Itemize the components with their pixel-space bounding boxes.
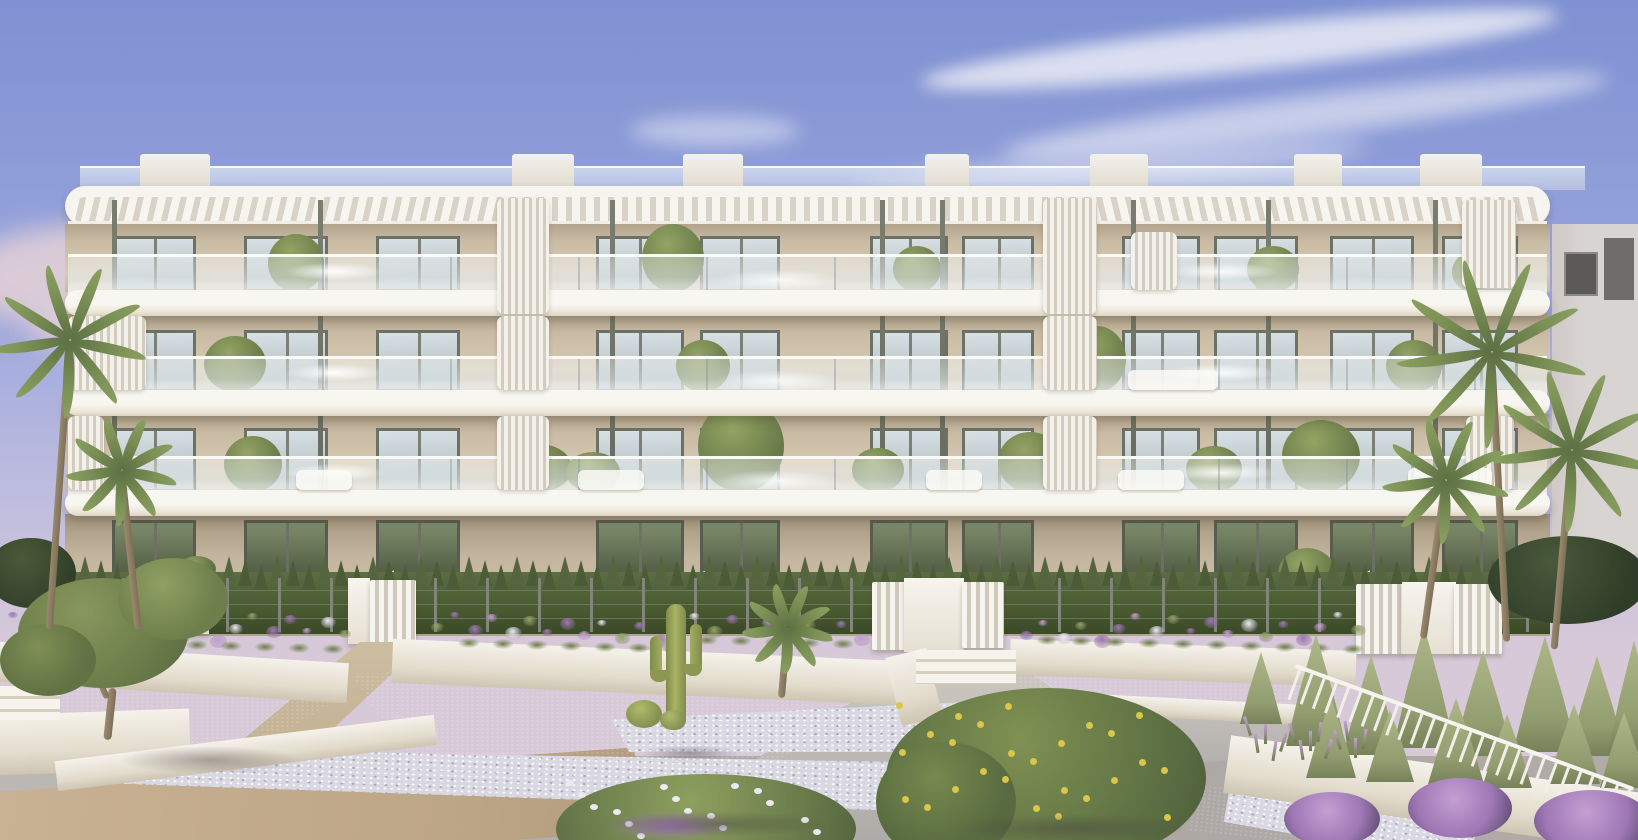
flower-cluster [578,631,591,640]
flower-greenery [558,640,584,652]
railing-baluster [1312,678,1326,709]
flower-greenery [286,642,312,654]
flower-greenery [1136,637,1162,649]
purple-bush [1408,778,1512,838]
gate-slatted-panel [872,582,906,650]
ground-shadow [560,806,880,840]
flower-greenery [1340,643,1366,655]
flower-greenery [490,638,516,650]
lemon-fruit [1161,767,1168,774]
lemon-fruit [927,731,934,738]
railing-baluster [1349,691,1363,722]
fence-post [590,578,593,632]
flower-cluster [321,617,336,628]
flower-cluster [836,621,847,628]
lemon-fruit [1108,730,1115,737]
fence-post [1110,578,1113,632]
hedge-tip [990,556,1004,582]
bush-blossom [578,792,586,798]
railing-baluster [1471,736,1485,767]
flower-greenery [1068,635,1094,647]
fence-post [1162,578,1165,632]
flower-greenery [1170,638,1196,650]
flower-cluster [1259,632,1273,642]
lemon-fruit [949,739,956,746]
hedge-tip [846,556,860,582]
bush-blossom [566,780,574,786]
hedge-tip [270,556,284,582]
lemon-fruit [902,796,909,803]
lavender-spike [1264,724,1267,744]
railing-baluster [1336,687,1350,718]
lemon-fruit [896,702,903,709]
ground-shadow [900,808,1240,840]
lemon-fruit [1111,777,1118,784]
flower-greenery [1238,640,1264,652]
railing-baluster [1507,749,1521,780]
lemon-fruit [977,721,984,728]
bush-blossom [754,788,762,794]
flower-cluster [542,629,553,636]
flower-cluster [854,634,870,646]
ground-shadow [620,742,760,764]
flower-cluster [1222,630,1234,638]
hedge-tip [558,556,572,582]
flower-cluster [450,612,460,618]
flower-cluster [468,625,483,636]
hedge-tip [654,556,668,582]
palm-tree [1490,368,1638,732]
lemon-fruit [1030,758,1037,765]
railing-baluster [1373,700,1387,731]
railing-baluster [1361,696,1375,727]
lemon-fruit [1002,776,1009,783]
flower-cluster [597,620,607,626]
flower-cluster [560,618,576,630]
lemon-fruit [955,713,962,720]
flower-cluster [1112,624,1126,634]
flower-greenery [592,641,618,653]
lemon-fruit [1083,795,1090,802]
hedge-tip [1134,556,1148,582]
flower-greenery [1034,634,1060,646]
hedge-tip [1038,556,1052,582]
bush-blossom [660,784,668,790]
gate-pier [904,578,964,652]
railing-baluster [1324,682,1338,713]
hedge-tip [462,556,476,582]
railing-baluster [1544,762,1558,793]
flower-greenery [524,639,550,651]
flower-greenery [1102,636,1128,648]
hedge-tip [1230,556,1244,582]
lemon-fruit [952,786,959,793]
railing-baluster [1495,745,1509,776]
palm-tree [742,582,834,744]
railing-baluster [1520,754,1534,785]
hedge-tip [1086,556,1100,582]
fence-post [278,578,281,632]
gate-pier [348,578,370,644]
purple-bush [1284,792,1380,840]
fence-post [486,578,489,632]
lemon-fruit [899,749,906,756]
lemon-fruit [1061,787,1068,794]
gate-slatted-panel [370,580,416,644]
fence-post [1058,578,1061,632]
ground-shadow [80,740,340,780]
flower-cluster [1186,628,1196,634]
flower-cluster [284,615,297,624]
palm-tree [66,414,178,686]
lemon-fruit [1058,740,1065,747]
hedge-tip [1182,556,1196,582]
lemon-fruit [1008,750,1015,757]
flower-greenery [1272,641,1298,653]
flower-cluster [266,626,282,638]
hedge-tip [1278,556,1292,582]
lemon-fruit [1086,722,1093,729]
architectural-render-photo [0,0,1638,840]
flower-cluster [1278,621,1289,628]
flower-greenery [456,637,482,649]
lemon-fruit [1139,759,1146,766]
gate-slatted-panel [962,582,1004,648]
flower-cluster [1204,617,1219,628]
entrance-steps-center [916,650,1016,684]
railing-baluster [1483,740,1497,771]
lavender-spike [1354,738,1357,758]
flower-cluster [1020,631,1033,640]
hedge-tip [702,556,716,582]
flower-greenery [320,643,346,655]
railing-baluster [1300,674,1314,705]
fence-post [538,578,541,632]
hedge-tip [414,556,428,582]
hedge-tip [750,556,764,582]
garden [0,0,1638,840]
lavender-spike [1309,731,1312,751]
bush-blossom [731,783,739,789]
lemon-fruit [1136,712,1143,719]
fence-post [850,578,853,632]
fence-post [1266,578,1269,632]
flower-cluster [1333,612,1343,618]
railing-baluster [1532,758,1546,789]
barrel-cactus-2 [660,710,686,730]
hedge-tip [1326,556,1340,582]
flower-greenery [1204,639,1230,651]
lemon-fruit [1005,703,1012,710]
palm-tree [1382,416,1510,704]
bush-blossom [672,796,680,802]
lemon-fruit [980,768,987,775]
hedge-tip [510,556,524,582]
flower-cluster [1241,619,1258,632]
barrel-cactus-1 [626,700,662,728]
hedge-tip [606,556,620,582]
